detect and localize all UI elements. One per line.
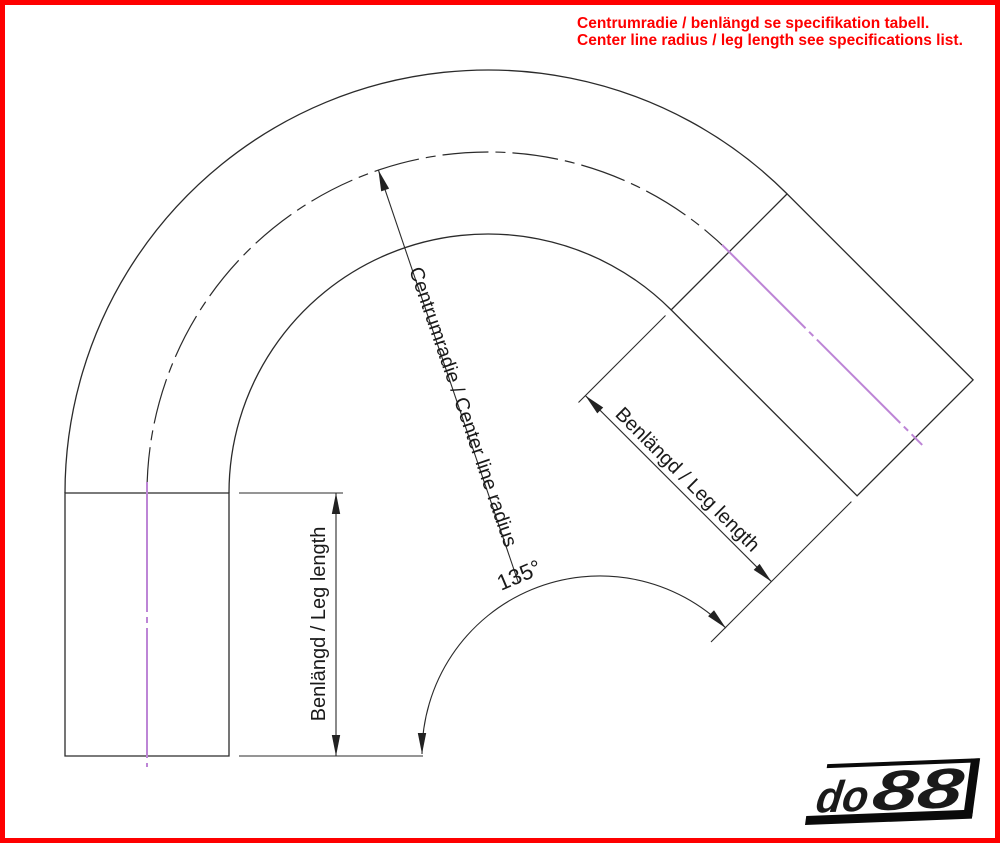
logo-text-88: 88	[869, 756, 968, 822]
logo-text-do: do	[813, 772, 872, 823]
bend-drawing: Benlängd / Leg length Benlängd / Leg len…	[5, 5, 1000, 843]
right-dim-extension-start	[579, 316, 666, 403]
radius-label: Centrumradie / Center line radius	[404, 264, 521, 550]
do88-logo: do 88	[795, 753, 990, 838]
right-leg-length-label: Benlängd / Leg length	[611, 403, 764, 556]
right-dim-line	[585, 396, 771, 582]
angle-dim-arc	[422, 576, 726, 754]
drawing-sheet: Benlängd / Leg length Benlängd / Leg len…	[0, 0, 1000, 843]
angle-label: 135°	[493, 555, 545, 596]
specification-note-line2: Center line radius / leg length see spec…	[577, 32, 963, 49]
specification-note-line1: Centrumradie / benlängd se specifikation…	[577, 15, 963, 32]
left-leg-length-label: Benlängd / Leg length	[308, 527, 330, 722]
specification-note: Centrumradie / benlängd se specifikation…	[577, 15, 963, 49]
right-leg-centerline	[722, 245, 922, 445]
